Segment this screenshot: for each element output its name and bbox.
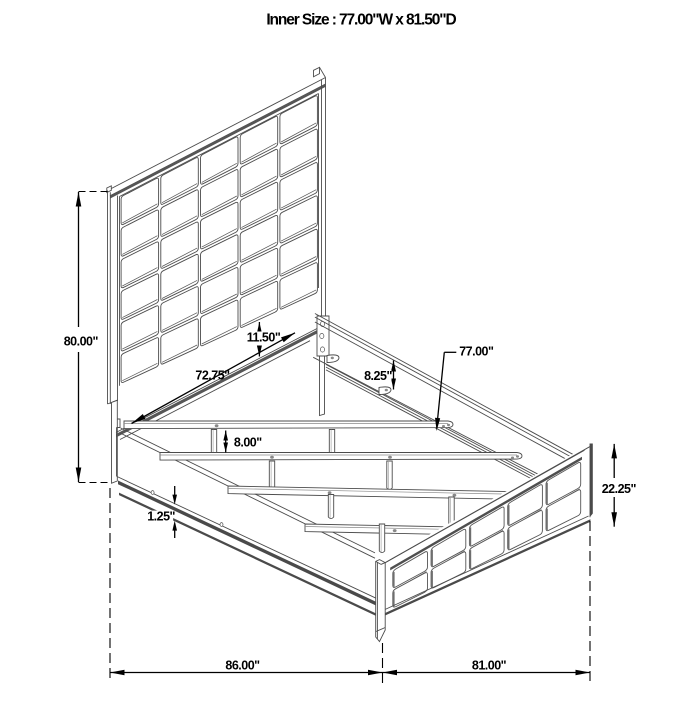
svg-text:80.00": 80.00" bbox=[64, 335, 99, 349]
svg-text:Inner Size : 77.00"W x 81.50"D: Inner Size : 77.00"W x 81.50"D bbox=[266, 12, 456, 29]
svg-text:8.00": 8.00" bbox=[234, 435, 262, 449]
svg-text:81.00": 81.00" bbox=[472, 659, 507, 673]
svg-text:22.25": 22.25" bbox=[602, 482, 637, 496]
svg-text:11.50": 11.50" bbox=[247, 331, 281, 345]
svg-text:77.00": 77.00" bbox=[459, 345, 494, 359]
svg-text:8.25": 8.25" bbox=[364, 369, 392, 383]
svg-text:72.75": 72.75" bbox=[195, 369, 230, 383]
svg-text:1.25": 1.25" bbox=[147, 510, 175, 524]
svg-text:86.00": 86.00" bbox=[225, 659, 260, 673]
